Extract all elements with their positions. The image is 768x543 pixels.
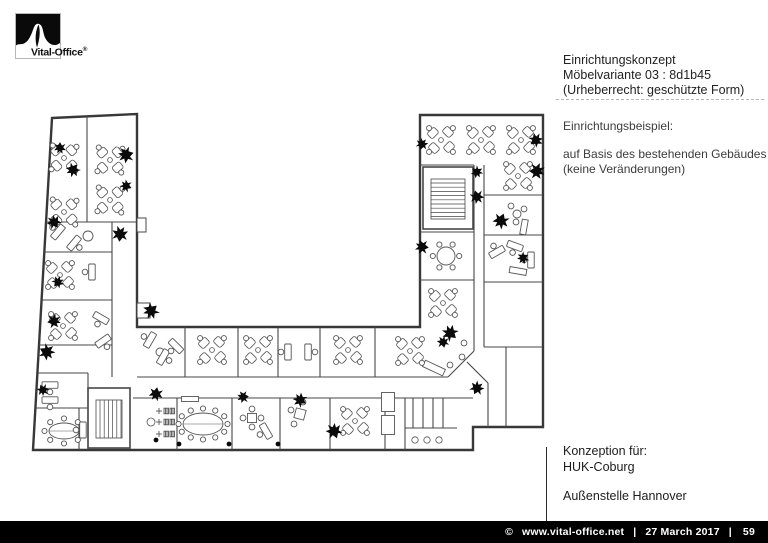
sink (412, 437, 418, 443)
round-fixture (147, 418, 155, 426)
logo: Vital-Office® (15, 13, 135, 63)
section-divider (556, 99, 764, 100)
title-line-2: Möbelvariante 03 : 8d1b45 (563, 68, 744, 83)
stool (461, 340, 467, 346)
round-table (513, 210, 521, 218)
stool (249, 424, 255, 430)
example-line-2: (keine Veränderungen) (563, 162, 766, 177)
concept-block: Konzeption für: HUK-Coburg Außenstelle H… (563, 443, 687, 504)
stool (521, 206, 527, 212)
example-line-1: auf Basis des bestehenden Gebäudes (563, 147, 766, 162)
footer-url: www.vital-office.net (522, 526, 624, 538)
brand-text: Vital-Office® (31, 46, 87, 59)
sink (424, 437, 430, 443)
stool (459, 354, 465, 360)
concept-line-3: Außenstelle Hannover (563, 488, 687, 504)
example-block: Einrichtungsbeispiel: auf Basis des best… (563, 119, 766, 177)
stool (288, 407, 294, 413)
concept-rule (546, 447, 547, 521)
small-plant-icon (227, 442, 232, 447)
table-or-cabinet (182, 397, 199, 402)
table-or-cabinet (382, 416, 395, 435)
concept-line-1: Konzeption für: (563, 443, 687, 459)
sink (436, 437, 442, 443)
stool (291, 421, 297, 427)
small-plant-icon (276, 442, 281, 447)
example-heading: Einrichtungsbeispiel: (563, 119, 766, 134)
coat-rack (156, 419, 175, 425)
title-block: Einrichtungskonzept Möbelvariante 03 : 8… (563, 53, 744, 98)
footer-page-number: 59 (743, 526, 755, 538)
stool (508, 203, 514, 209)
coat-rack (156, 431, 175, 437)
table-or-cabinet (294, 408, 306, 420)
small-plant-icon (177, 442, 182, 447)
footer-bar: © www.vital-office.net | 27 March 2017 |… (0, 521, 768, 543)
title-line-1: Einrichtungskonzept (563, 53, 744, 68)
footer-separator: | (729, 526, 732, 538)
page: Vital-Office® Einrichtungskonzept Möbelv… (0, 0, 768, 543)
table-or-cabinet (248, 414, 257, 423)
table-or-cabinet (382, 393, 395, 412)
footer-date: 27 March 2017 (645, 526, 719, 538)
stool (258, 415, 264, 421)
stool (447, 362, 453, 368)
spacer (563, 475, 687, 488)
small-plant-icon (154, 438, 159, 443)
title-line-3: (Urheberrecht: geschützte Form) (563, 83, 744, 98)
footer-separator: | (633, 526, 636, 538)
stool (513, 219, 519, 225)
round-table (83, 231, 93, 241)
stool (249, 406, 255, 412)
concept-line-2: HUK-Coburg (563, 459, 687, 475)
registered-mark: ® (83, 46, 88, 53)
spacer (563, 134, 766, 147)
brand-name: Vital-Office (31, 47, 83, 59)
footer-copyright: © (505, 526, 513, 538)
coat-rack (156, 408, 175, 414)
stool (240, 415, 246, 421)
